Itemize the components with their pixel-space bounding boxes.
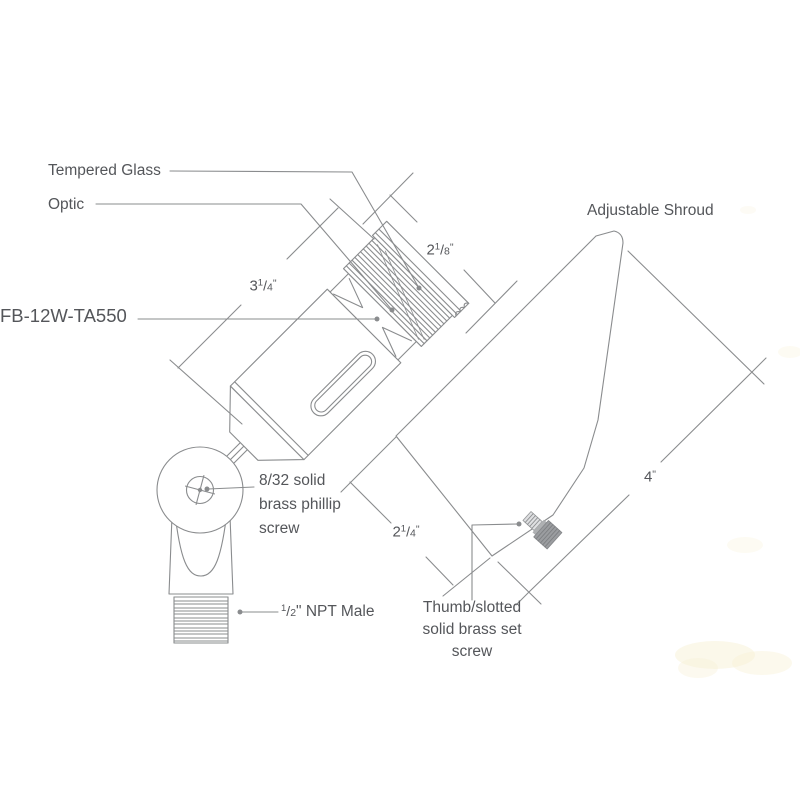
dim-unit: " xyxy=(416,524,420,536)
label-line: screw xyxy=(259,517,341,541)
label-line: screw xyxy=(422,641,521,663)
label-model-number: FB-12W-TA550 xyxy=(0,306,127,325)
label-adjustable-shroud: Adjustable Shroud xyxy=(587,201,714,220)
dim-label-4: 4" xyxy=(644,466,656,489)
label-line: solid brass set xyxy=(422,619,521,641)
label-line: Thumb/slotted xyxy=(422,597,521,619)
fixture-line-drawing xyxy=(0,0,800,800)
npt-thread-stem xyxy=(174,597,228,643)
label-line: brass phillip xyxy=(259,493,341,517)
dim-unit: " xyxy=(652,469,656,481)
npt-text: " NPT Male xyxy=(296,603,374,620)
dim-label-2-1-8: 21/8" xyxy=(426,239,453,262)
label-set-screw: Thumb/slotted solid brass set screw xyxy=(422,597,521,663)
label-optic: Optic xyxy=(48,195,84,214)
dim-unit: " xyxy=(273,278,277,290)
spec-sheet-diagram: Tempered Glass Optic Adjustable Shroud F… xyxy=(0,0,800,800)
dim-unit: " xyxy=(450,242,454,254)
label-tempered-glass: Tempered Glass xyxy=(48,161,161,180)
label-line: 8/32 solid xyxy=(259,469,341,493)
label-phillips-screw: 8/32 solid brass phillip screw xyxy=(259,469,341,541)
label-npt-male: 1/2" NPT Male xyxy=(281,602,374,623)
leader-npt xyxy=(238,610,279,615)
dim-label-2-1-4: 21/4" xyxy=(392,521,419,544)
knuckle-assembly xyxy=(157,447,243,643)
dim-label-3-1-4: 31/4" xyxy=(249,275,276,298)
paper-smudges xyxy=(675,206,800,678)
